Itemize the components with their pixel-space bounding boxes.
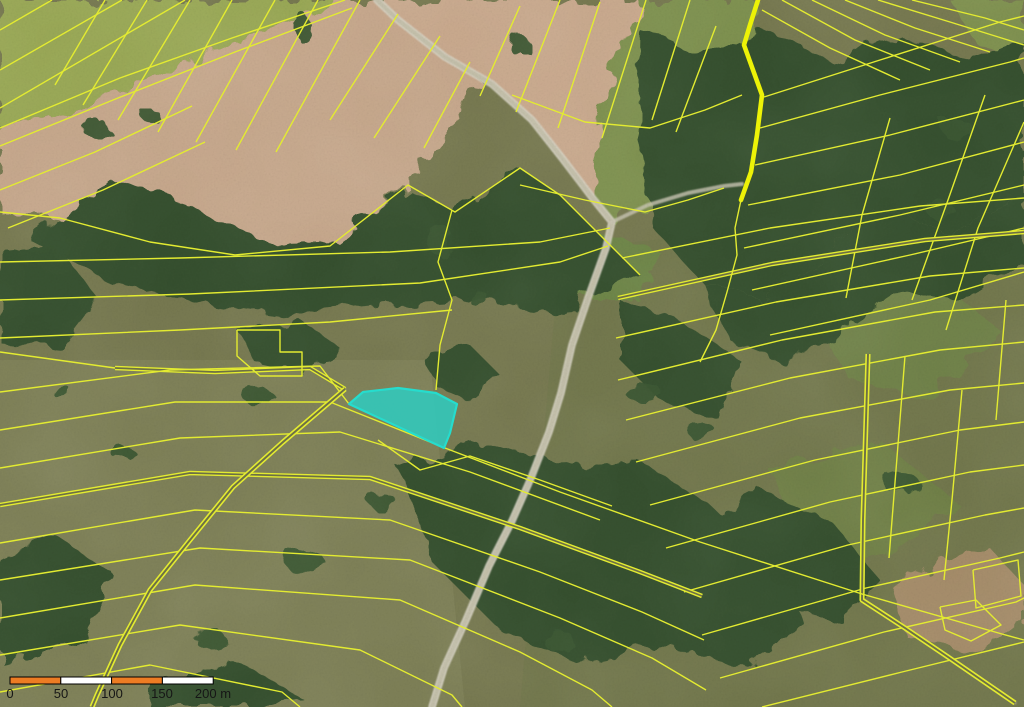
- scale-bar-segment: [112, 677, 163, 684]
- photo-tone-overlay: [0, 0, 1024, 707]
- scale-bar-label: 150: [151, 686, 173, 701]
- scale-bar-label: 0: [6, 686, 13, 701]
- scale-bar-segment: [10, 677, 61, 684]
- scale-bar-label: 50: [54, 686, 68, 701]
- map-canvas[interactable]: 050100150200 m: [0, 0, 1024, 707]
- map-viewport[interactable]: 050100150200 m: [0, 0, 1024, 707]
- scale-bar-segment: [61, 677, 112, 684]
- scale-bar-segment: [162, 677, 213, 684]
- scale-bar-label: 200 m: [195, 686, 231, 701]
- scale-bar-label: 100: [101, 686, 123, 701]
